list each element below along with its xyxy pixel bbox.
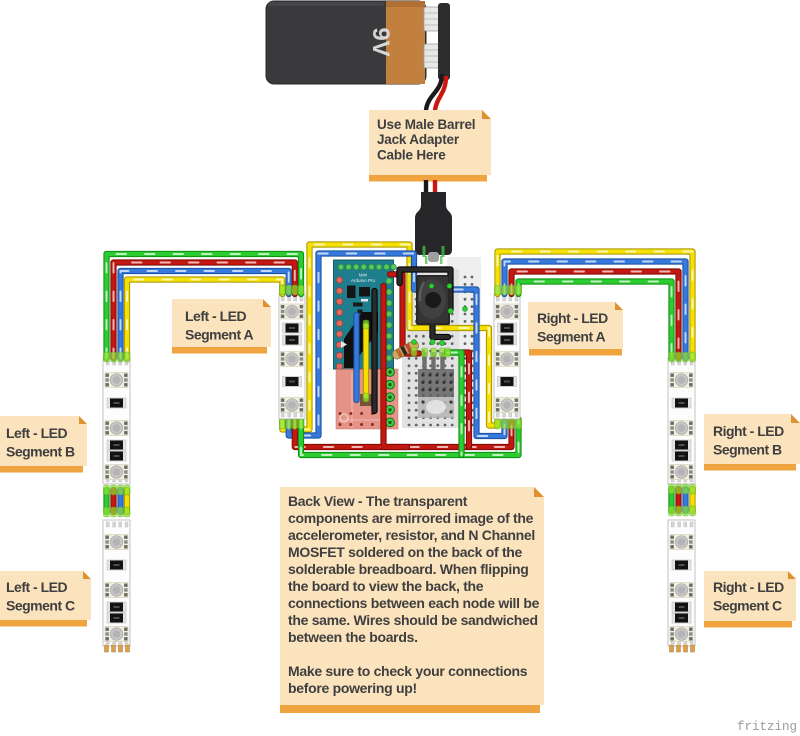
svg-text:Mini: Mini bbox=[359, 273, 367, 278]
svg-text:Cable Here: Cable Here bbox=[377, 147, 446, 162]
svg-text:the same. Wires should be sand: the same. Wires should be sandwiched bbox=[288, 612, 538, 628]
svg-text:MOSFET soldered on the back of: MOSFET soldered on the back of the bbox=[288, 544, 523, 560]
svg-text:before powering up!: before powering up! bbox=[288, 680, 417, 696]
svg-text:Segment B: Segment B bbox=[6, 444, 75, 460]
svg-text:Segment C: Segment C bbox=[713, 598, 782, 614]
svg-text:Segment A: Segment A bbox=[537, 329, 605, 345]
svg-text:fritzing: fritzing bbox=[737, 720, 797, 734]
svg-text:solderable breadboard. When fl: solderable breadboard. When flipping bbox=[288, 561, 528, 577]
svg-text:the board to view the back, th: the board to view the back, the bbox=[288, 578, 484, 594]
svg-text:Arduino Pro: Arduino Pro bbox=[351, 278, 376, 283]
svg-text:connections between each node: connections between each node will be bbox=[288, 595, 540, 611]
svg-text:Left - LED: Left - LED bbox=[6, 579, 67, 595]
svg-text:Segment C: Segment C bbox=[6, 598, 75, 614]
svg-text:components are mirrored image: components are mirrored image of the bbox=[288, 510, 534, 526]
svg-text:Right - LED: Right - LED bbox=[713, 579, 784, 595]
svg-text:Right - LED: Right - LED bbox=[537, 310, 608, 326]
svg-text:Right - LED: Right - LED bbox=[713, 423, 784, 439]
svg-text:Left - LED: Left - LED bbox=[6, 425, 67, 441]
svg-text:9V: 9V bbox=[367, 27, 394, 56]
svg-text:Back View - The transparent: Back View - The transparent bbox=[288, 493, 468, 509]
svg-text:Segment A: Segment A bbox=[185, 327, 253, 343]
svg-text:between the boards.: between the boards. bbox=[288, 629, 418, 645]
svg-text:accelerometer, resistor, and N: accelerometer, resistor, and N Channel bbox=[288, 527, 535, 543]
svg-text:Use Male Barrel: Use Male Barrel bbox=[377, 117, 475, 132]
svg-text:Segment B: Segment B bbox=[713, 442, 782, 458]
svg-text:Jack Adapter: Jack Adapter bbox=[377, 132, 460, 147]
svg-text:Make sure to check your connec: Make sure to check your connections bbox=[288, 663, 528, 679]
svg-text:Left - LED: Left - LED bbox=[185, 308, 246, 324]
